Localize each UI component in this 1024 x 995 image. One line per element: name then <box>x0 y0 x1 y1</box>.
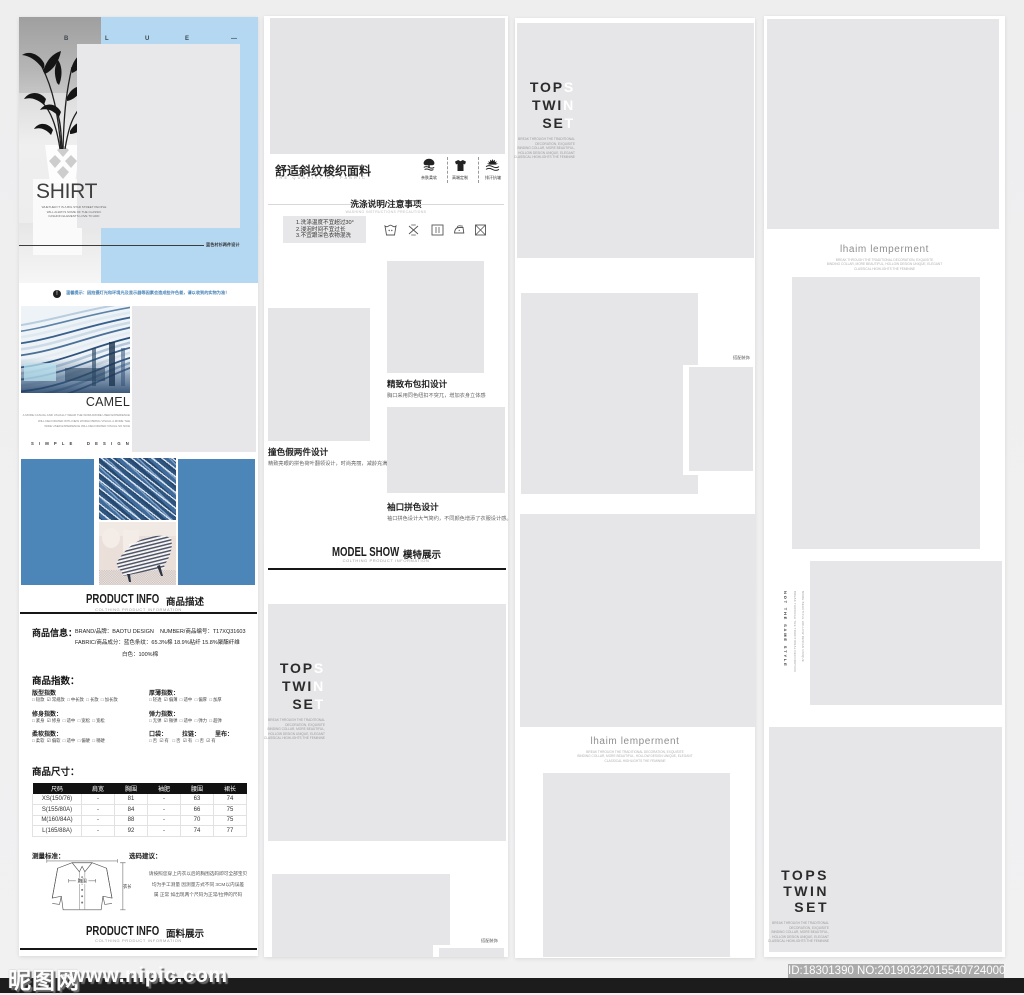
svg-text:胸围: 胸围 <box>78 878 88 885</box>
svg-text:衣长: 衣长 <box>123 883 131 890</box>
